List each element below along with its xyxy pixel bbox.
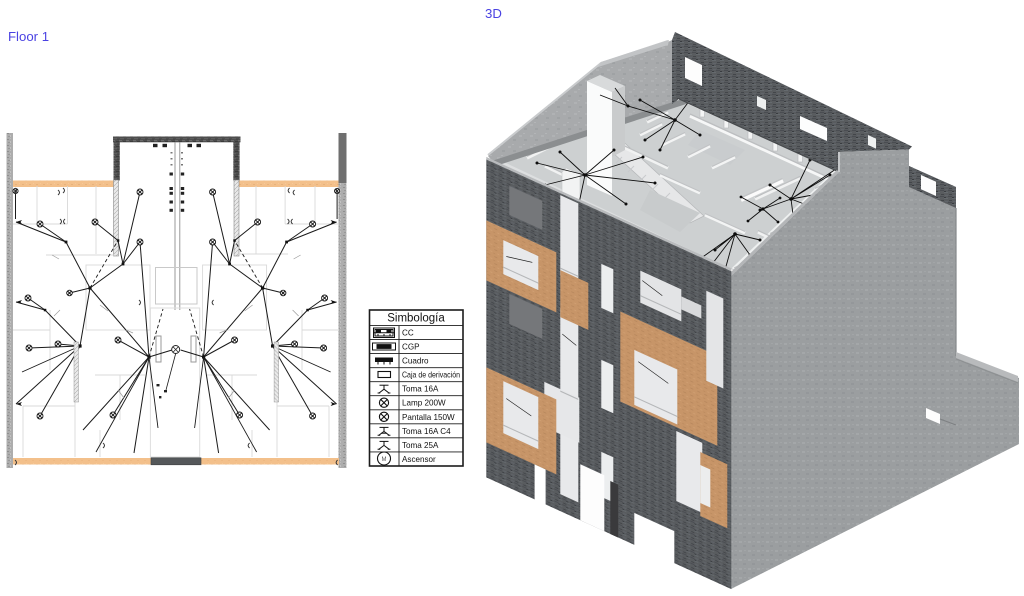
svg-text:Caja de derivación: Caja de derivación — [402, 371, 460, 380]
svg-text:Lamp 200W: Lamp 200W — [402, 399, 446, 408]
svg-text:Ascensor: Ascensor — [402, 455, 436, 464]
svg-text:Simbología: Simbología — [387, 313, 445, 325]
svg-text:CGP: CGP — [402, 343, 420, 352]
svg-text:Pantalla 150W: Pantalla 150W — [402, 413, 455, 422]
svg-text:Toma 16A: Toma 16A — [402, 385, 439, 394]
svg-text:Toma 25A: Toma 25A — [402, 441, 439, 450]
svg-text:Toma 16A C4: Toma 16A C4 — [402, 427, 451, 436]
svg-text:CC: CC — [402, 329, 414, 338]
svg-text:M: M — [382, 457, 387, 463]
svg-text:Cuadro: Cuadro — [402, 357, 429, 366]
